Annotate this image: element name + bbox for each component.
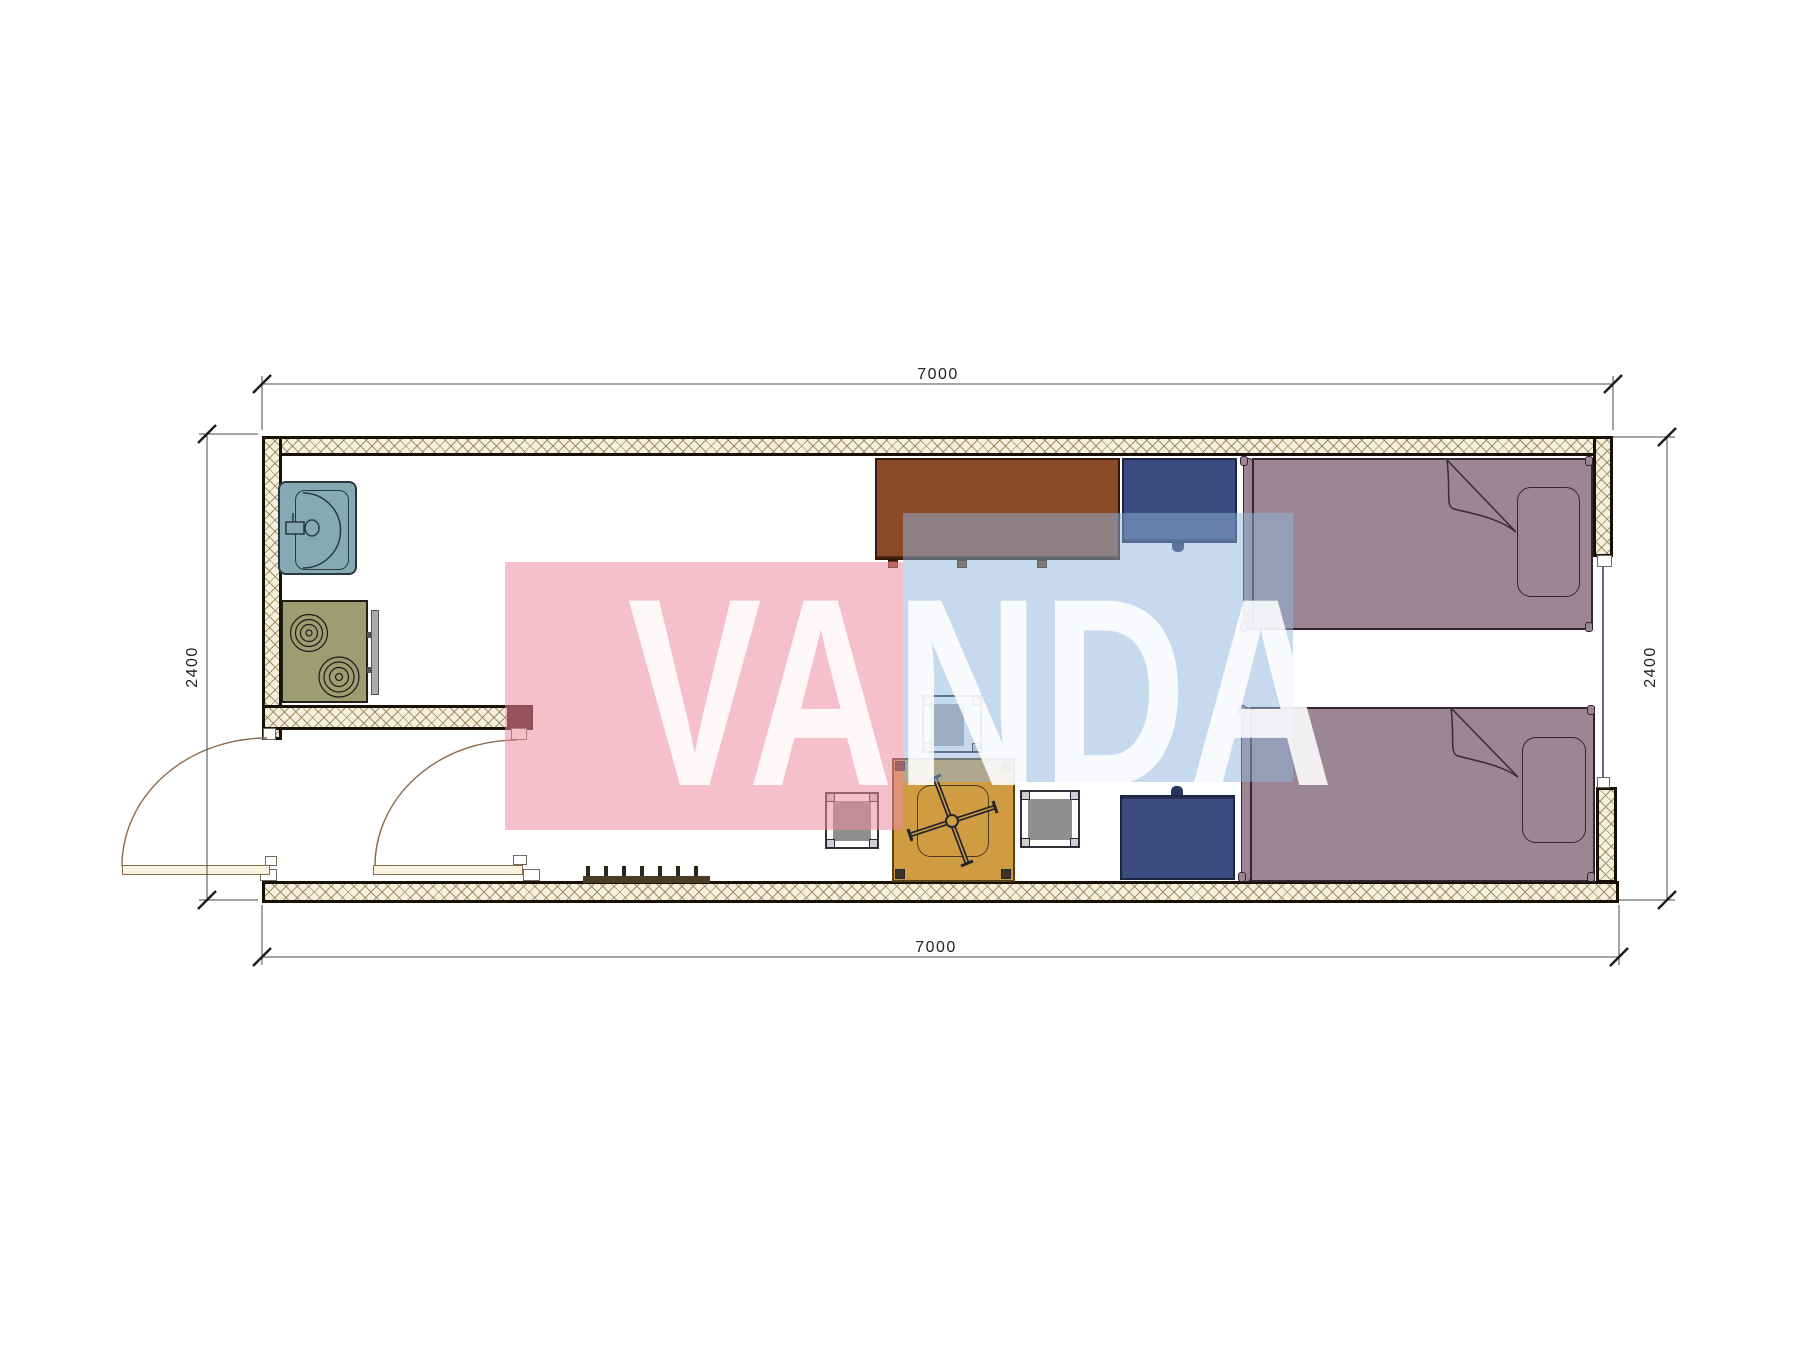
bed-2-post xyxy=(1587,705,1595,715)
wall-right-lower xyxy=(1596,787,1617,883)
radiator-fin xyxy=(586,866,590,876)
dimension-label-bottom: 7000 xyxy=(915,939,957,956)
bed-2-post xyxy=(1238,872,1246,882)
door-jamb-left-wall xyxy=(263,728,276,740)
radiator-bar xyxy=(583,876,710,883)
door-leaf-1 xyxy=(122,865,270,875)
radiator-fin xyxy=(676,866,680,876)
door-hinge-block-2 xyxy=(513,855,527,865)
door-swing-arc-2 xyxy=(375,740,517,866)
stove-control-panel xyxy=(371,610,379,695)
dimension-label-top: 7000 xyxy=(917,366,959,383)
radiator-fin xyxy=(622,866,626,876)
door-leaf-2 xyxy=(373,865,523,875)
wall-kitchen-partition xyxy=(262,705,533,730)
bed-1-post xyxy=(1585,622,1593,632)
stove-knob xyxy=(367,632,371,638)
stove-knob xyxy=(367,667,371,673)
radiator-fin xyxy=(694,866,698,876)
bed-1-post xyxy=(1240,456,1248,466)
floor-plan-canvas: 7000 7000 2400 2400 VANDA xyxy=(0,0,1800,1350)
sink-basin xyxy=(295,490,349,570)
bed-1-post xyxy=(1585,456,1593,466)
window-jamb-right-lower xyxy=(1597,777,1610,788)
door-jamb-bottom-wall-mid xyxy=(523,869,540,881)
wall-top xyxy=(262,436,1613,456)
table-corner xyxy=(895,869,905,879)
stove xyxy=(281,600,368,703)
window-jamb-right-upper xyxy=(1597,555,1612,567)
dimension-label-right: 2400 xyxy=(1642,646,1659,688)
wall-left xyxy=(262,436,282,740)
bed-2-pillow xyxy=(1522,737,1586,843)
watermark-text: VANDA xyxy=(628,558,1183,826)
bed-1-pillow xyxy=(1517,487,1580,597)
bed-2-post xyxy=(1587,872,1595,882)
wall-right-upper xyxy=(1593,436,1613,557)
radiator-fin xyxy=(640,866,644,876)
door-swing-arc-1 xyxy=(122,738,267,866)
wall-bottom xyxy=(262,881,1619,903)
dimension-label-left: 2400 xyxy=(184,646,201,688)
radiator-fin xyxy=(658,866,662,876)
radiator-fin xyxy=(604,866,608,876)
table-corner xyxy=(1001,869,1011,879)
